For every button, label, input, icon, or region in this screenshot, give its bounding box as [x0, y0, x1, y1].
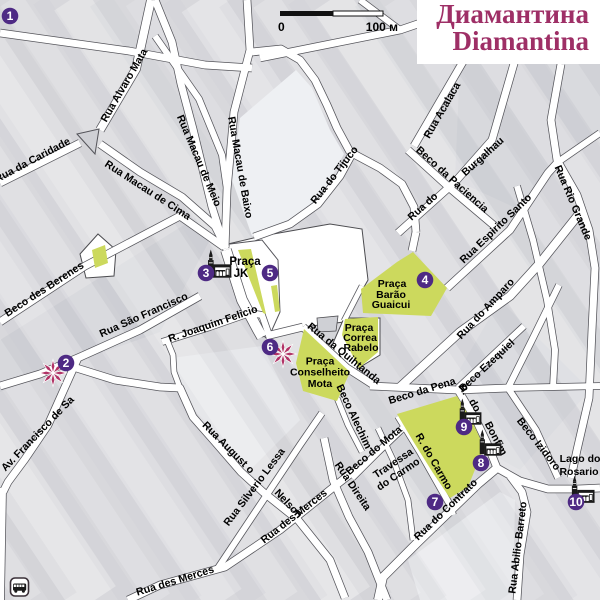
svg-text:8: 8 — [478, 456, 485, 470]
svg-text:5: 5 — [267, 266, 274, 280]
svg-text:JK: JK — [234, 268, 249, 280]
svg-text:9: 9 — [461, 420, 468, 434]
svg-text:3: 3 — [203, 266, 210, 280]
svg-text:Guaicui: Guaicui — [372, 299, 411, 311]
svg-text:4: 4 — [422, 273, 429, 287]
svg-text:10: 10 — [569, 495, 583, 509]
svg-text:Rabelo: Rabelo — [343, 342, 378, 354]
svg-text:2: 2 — [63, 356, 70, 370]
svg-text:1: 1 — [7, 9, 14, 23]
svg-text:100 м: 100 м — [366, 20, 398, 34]
svg-text:Mota: Mota — [308, 378, 333, 390]
svg-text:0: 0 — [278, 20, 285, 34]
svg-text:Diamantina: Diamantina — [452, 26, 589, 56]
svg-text:6: 6 — [267, 340, 274, 354]
svg-text:Conselheito: Conselheito — [290, 367, 350, 379]
svg-text:Lago do: Lago do — [560, 453, 600, 465]
svg-text:Rosario: Rosario — [559, 466, 598, 478]
svg-text:Диамантина: Диамантина — [436, 0, 589, 29]
svg-text:7: 7 — [432, 495, 439, 509]
svg-text:Praça: Praça — [229, 256, 261, 268]
